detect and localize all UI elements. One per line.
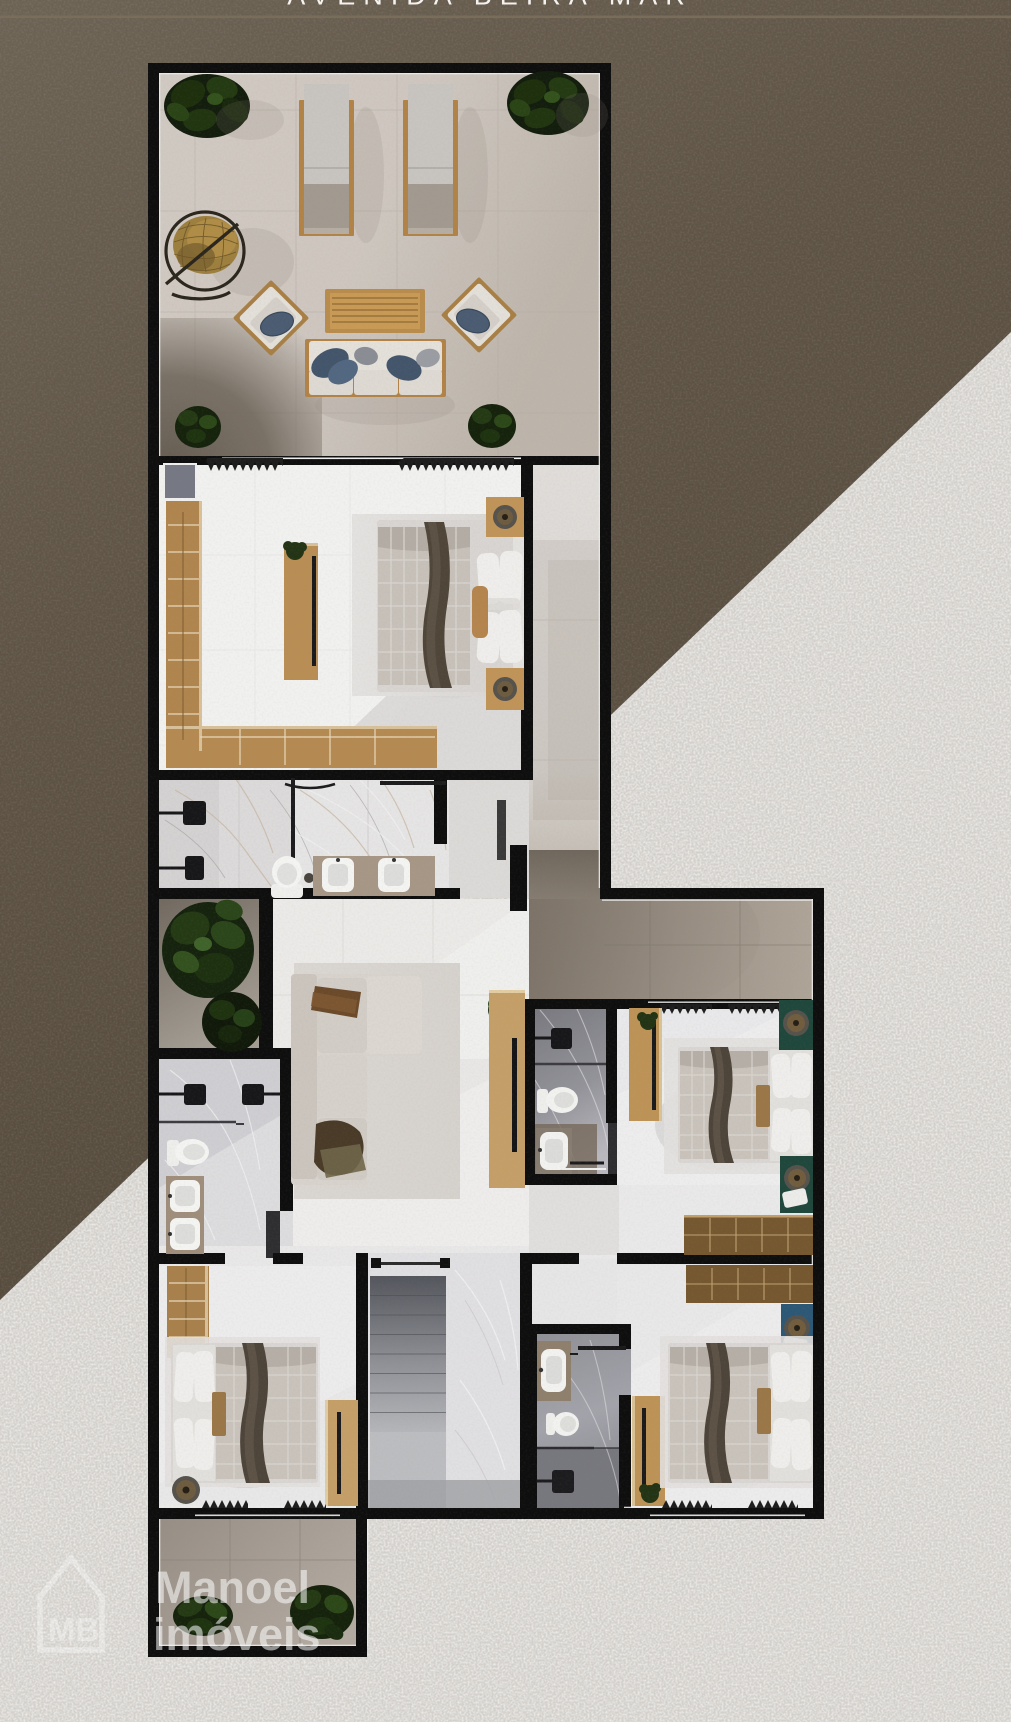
svg-text:ASSESSORIA IMOBILIÁRIA: ASSESSORIA IMOBILIÁRIA — [155, 1657, 362, 1672]
svg-text:AVENIDA BEIRA MAR: AVENIDA BEIRA MAR — [287, 0, 693, 11]
svg-text:MB: MB — [48, 1611, 99, 1648]
